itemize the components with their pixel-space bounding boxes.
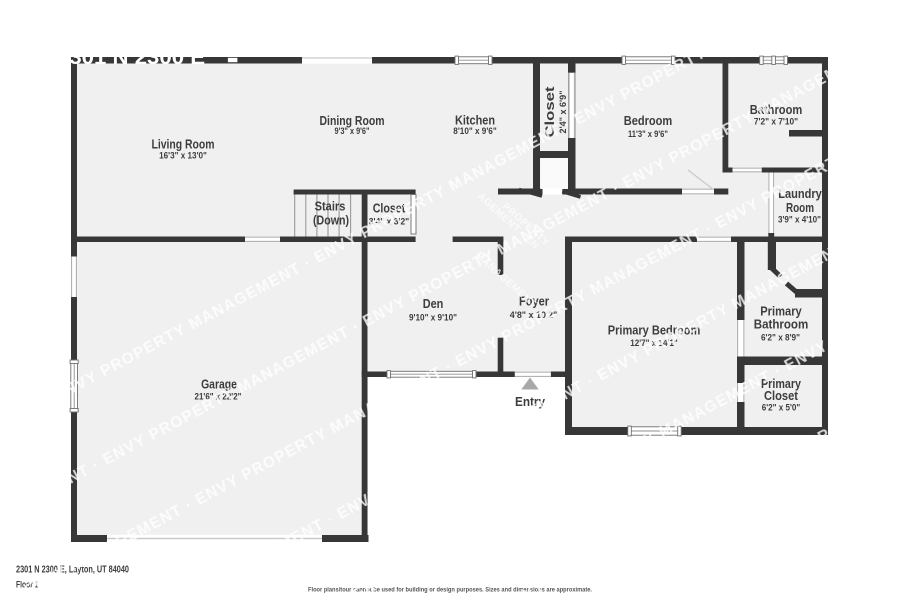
svg-text:3'9" x 4'10": 3'9" x 4'10" xyxy=(778,214,821,224)
svg-text:8'10" x 9'6": 8'10" x 9'6" xyxy=(453,126,496,136)
svg-text:Room: Room xyxy=(786,201,814,215)
svg-text:2301 N 2300 E: 2301 N 2300 E xyxy=(57,47,205,69)
svg-text:(Down): (Down) xyxy=(313,214,349,228)
svg-text:Bedroom: Bedroom xyxy=(624,114,673,128)
svg-text:9'10" x 9'10": 9'10" x 9'10" xyxy=(409,312,457,322)
svg-text:11'3" x 9'6": 11'3" x 9'6" xyxy=(628,129,668,139)
svg-text:Closet: Closet xyxy=(764,389,799,403)
svg-text:Bathroom: Bathroom xyxy=(754,318,809,332)
svg-text:Stairs: Stairs xyxy=(315,200,346,214)
svg-text:Primary: Primary xyxy=(760,305,802,319)
svg-text:6'2" x 5'0": 6'2" x 5'0" xyxy=(762,402,801,412)
svg-text:6'2" x 8'9": 6'2" x 8'9" xyxy=(761,332,800,342)
svg-text:9'3" x 9'6": 9'3" x 9'6" xyxy=(335,126,370,136)
svg-text:16'3" x 13'0": 16'3" x 13'0" xyxy=(159,150,207,160)
